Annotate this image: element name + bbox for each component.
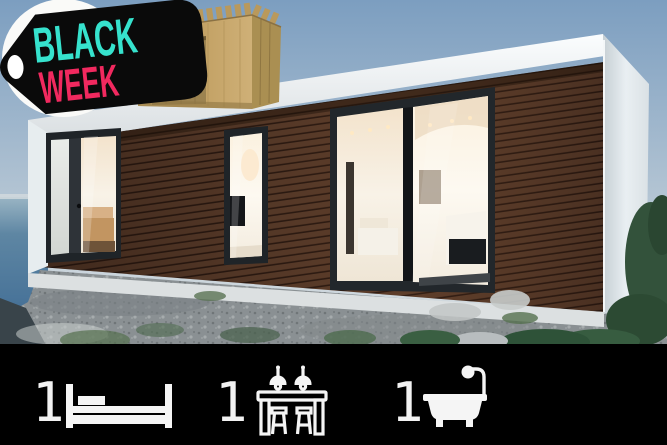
listing-card: BLACK WEEK 1 1 [0, 0, 667, 445]
bedroom-count: 1 [32, 376, 65, 430]
crate-side-face [252, 15, 281, 109]
house-photo-area: BLACK WEEK [0, 0, 667, 345]
bathtub-icon [421, 360, 493, 428]
stats-bar: 1 1 [0, 344, 667, 445]
badge-line2: WEEK [37, 54, 121, 113]
left-wall [28, 120, 48, 274]
bathroom-count: 1 [391, 376, 424, 430]
bed-icon [66, 384, 172, 428]
window-middle [224, 126, 268, 265]
kitchen-icon [256, 364, 328, 436]
black-week-badge: BLACK WEEK [0, 0, 236, 129]
window-left [46, 128, 121, 263]
kitchen-count: 1 [215, 376, 248, 430]
